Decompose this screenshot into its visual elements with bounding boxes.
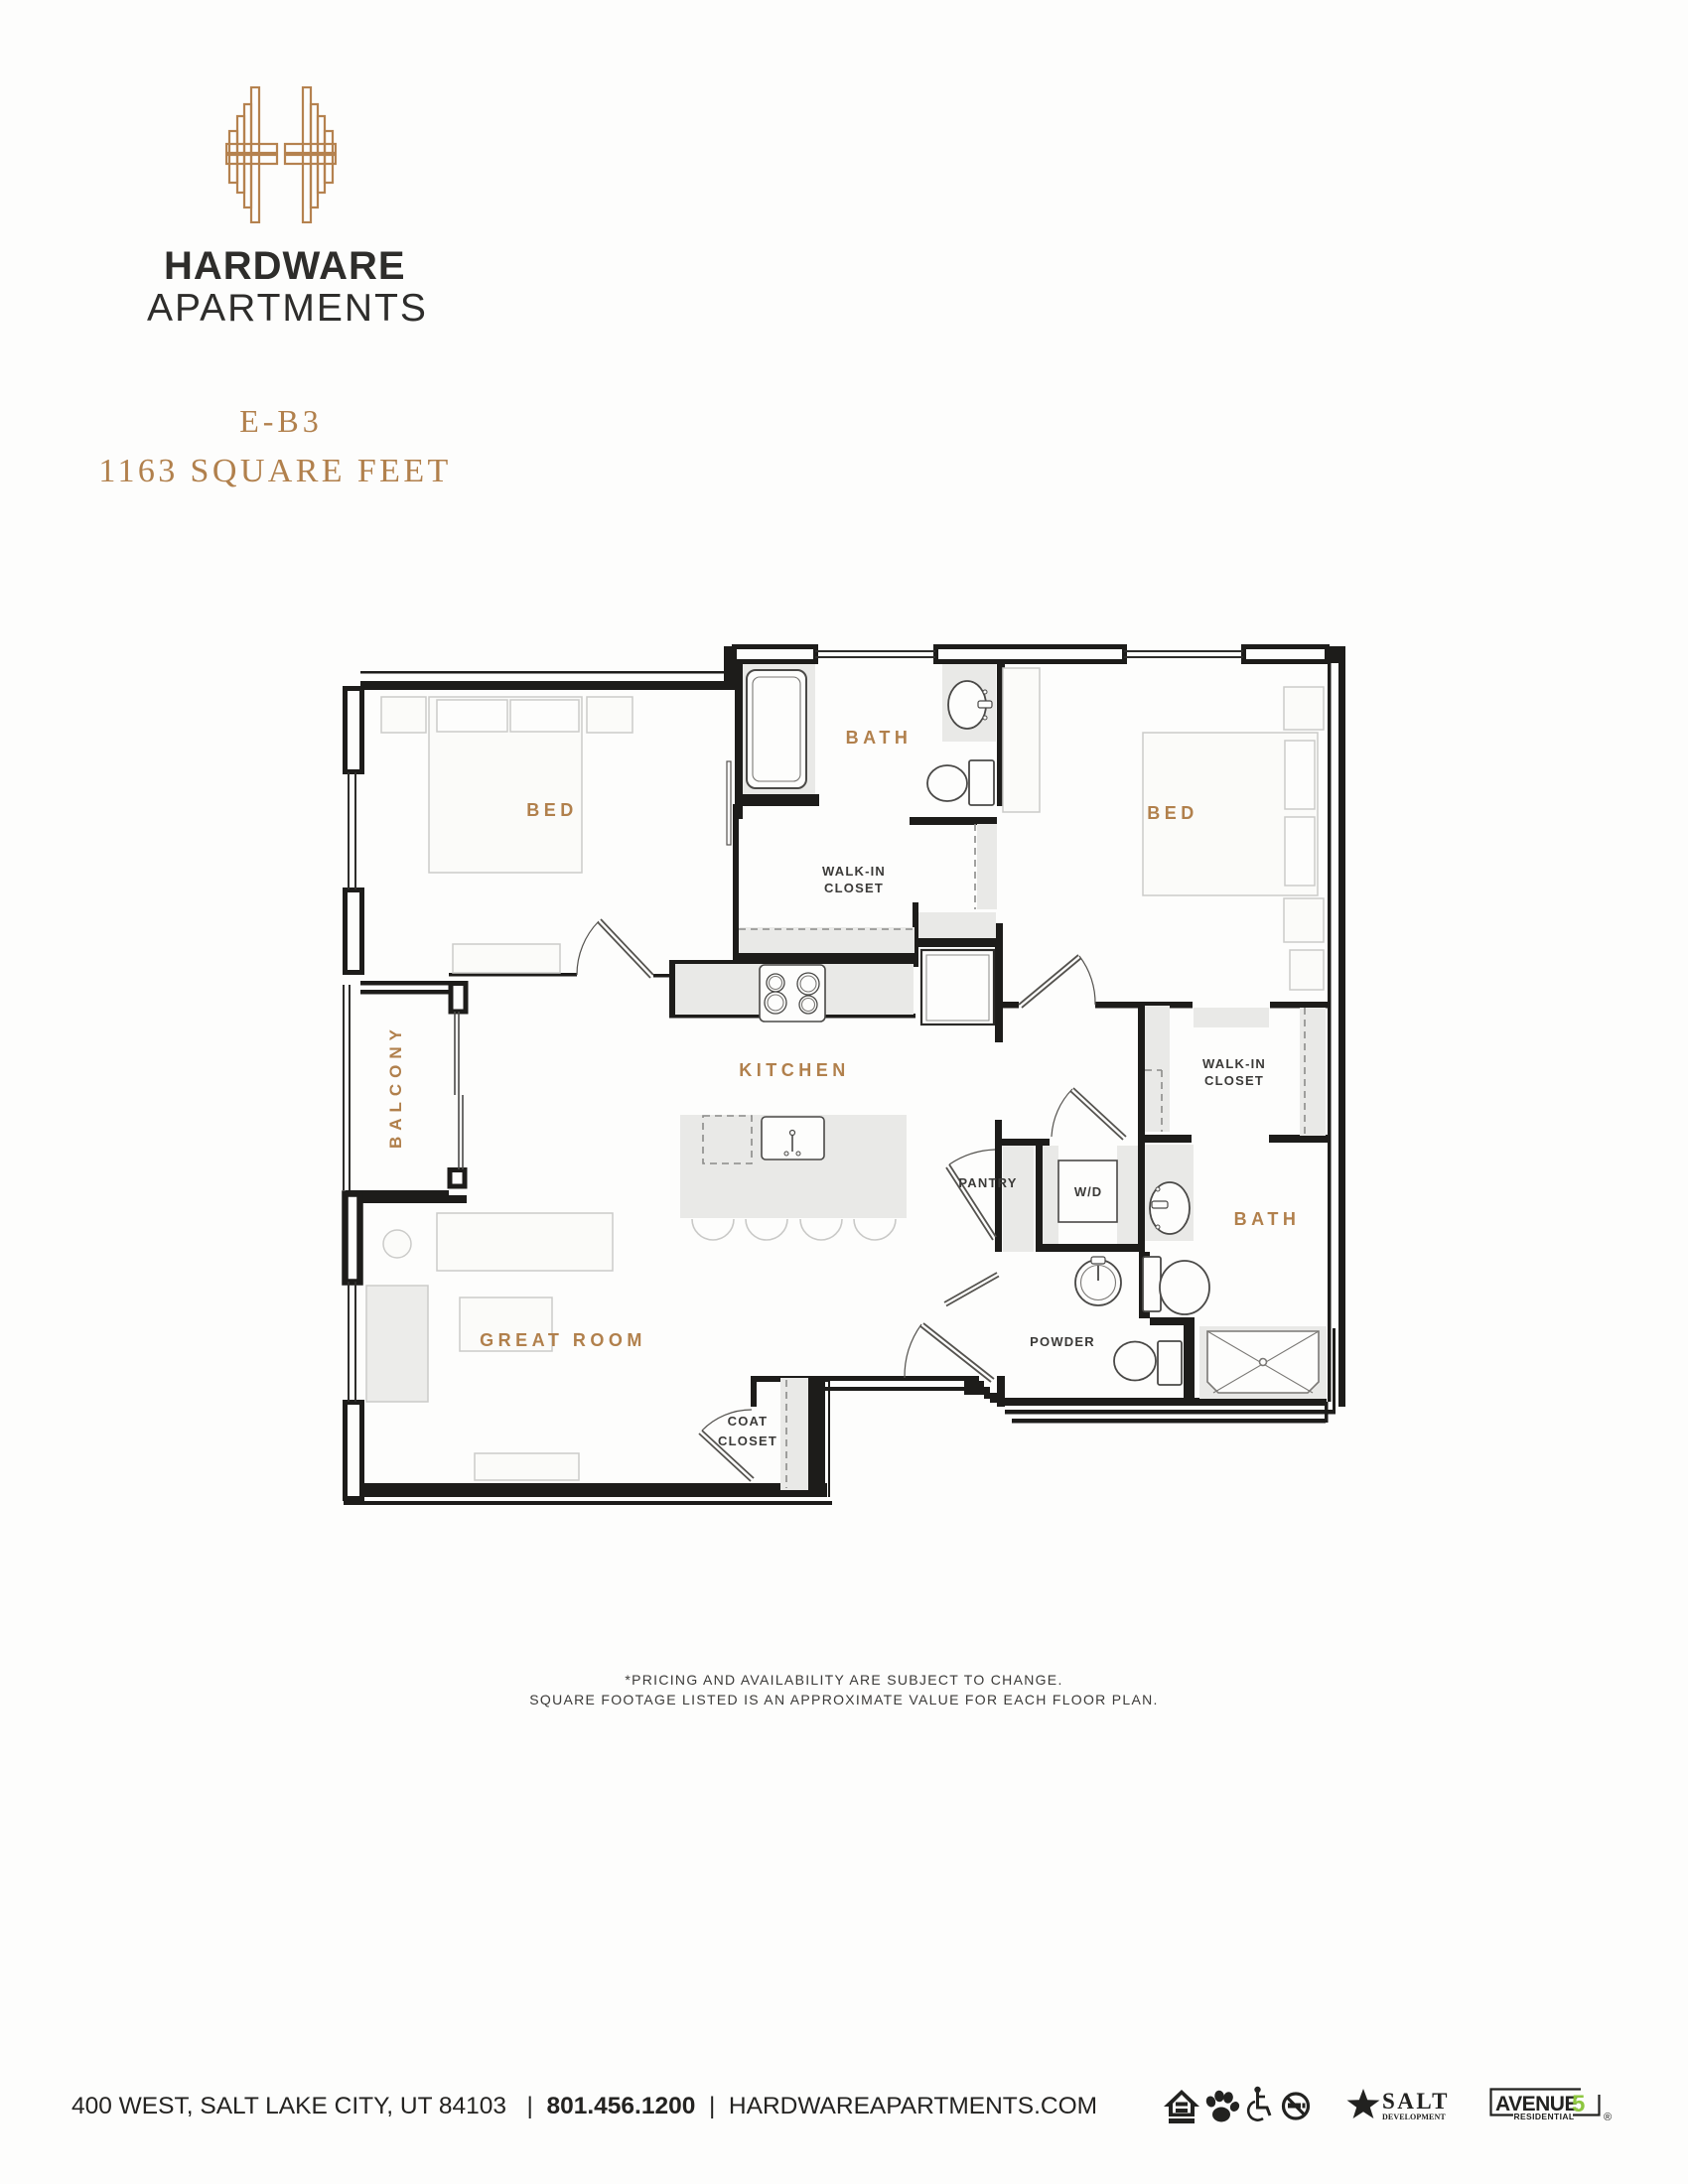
svg-text:CLOSET: CLOSET	[824, 881, 884, 895]
svg-text:SALT: SALT	[1382, 2089, 1450, 2114]
svg-text:GREAT ROOM: GREAT ROOM	[480, 1330, 646, 1350]
svg-text:POWDER: POWDER	[1030, 1334, 1095, 1349]
svg-text:®: ®	[1604, 2112, 1612, 2123]
svg-text:BALCONY: BALCONY	[386, 1024, 405, 1149]
svg-text:RESIDENTIAL: RESIDENTIAL	[1513, 2112, 1574, 2121]
svg-text:PANTRY: PANTRY	[958, 1175, 1017, 1190]
svg-text:BED: BED	[526, 800, 578, 820]
svg-text:BATH: BATH	[1234, 1209, 1301, 1229]
svg-text:WALK-IN: WALK-IN	[822, 864, 886, 879]
svg-text:DEVELOPMENT: DEVELOPMENT	[1382, 2113, 1446, 2121]
svg-text:BATH: BATH	[846, 728, 913, 748]
svg-text:W/D: W/D	[1074, 1184, 1102, 1199]
svg-text:WALK-IN: WALK-IN	[1202, 1056, 1266, 1071]
svg-text:KITCHEN: KITCHEN	[739, 1060, 850, 1080]
svg-text:BED: BED	[1147, 803, 1198, 823]
svg-text:CLOSET: CLOSET	[718, 1433, 777, 1448]
svg-text:CLOSET: CLOSET	[1204, 1073, 1264, 1088]
svg-text:COAT: COAT	[728, 1414, 769, 1429]
